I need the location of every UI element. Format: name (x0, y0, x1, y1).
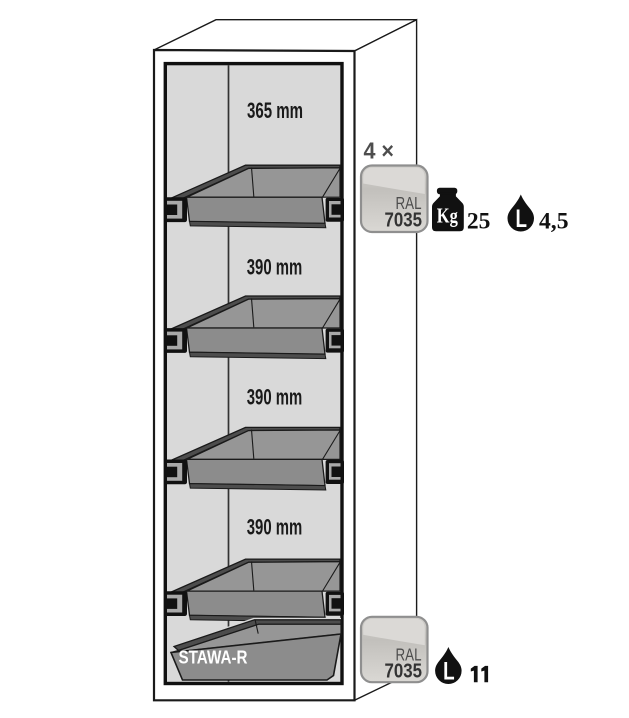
svg-text:365 mm: 365 mm (247, 98, 303, 123)
svg-text:4 ×: 4 × (364, 138, 395, 164)
svg-text:7035: 7035 (385, 209, 423, 231)
svg-text:390 mm: 390 mm (247, 515, 303, 540)
svg-text:4,5: 4,5 (539, 209, 569, 235)
svg-text:L: L (443, 658, 455, 686)
svg-text:L: L (516, 205, 528, 233)
svg-text:7035: 7035 (385, 660, 423, 682)
svg-text:25: 25 (467, 209, 491, 235)
svg-text:Kg: Kg (437, 203, 458, 227)
svg-text:STAWA-R: STAWA-R (179, 648, 248, 668)
svg-text:390 mm: 390 mm (247, 385, 303, 410)
svg-text:390 mm: 390 mm (247, 255, 303, 280)
